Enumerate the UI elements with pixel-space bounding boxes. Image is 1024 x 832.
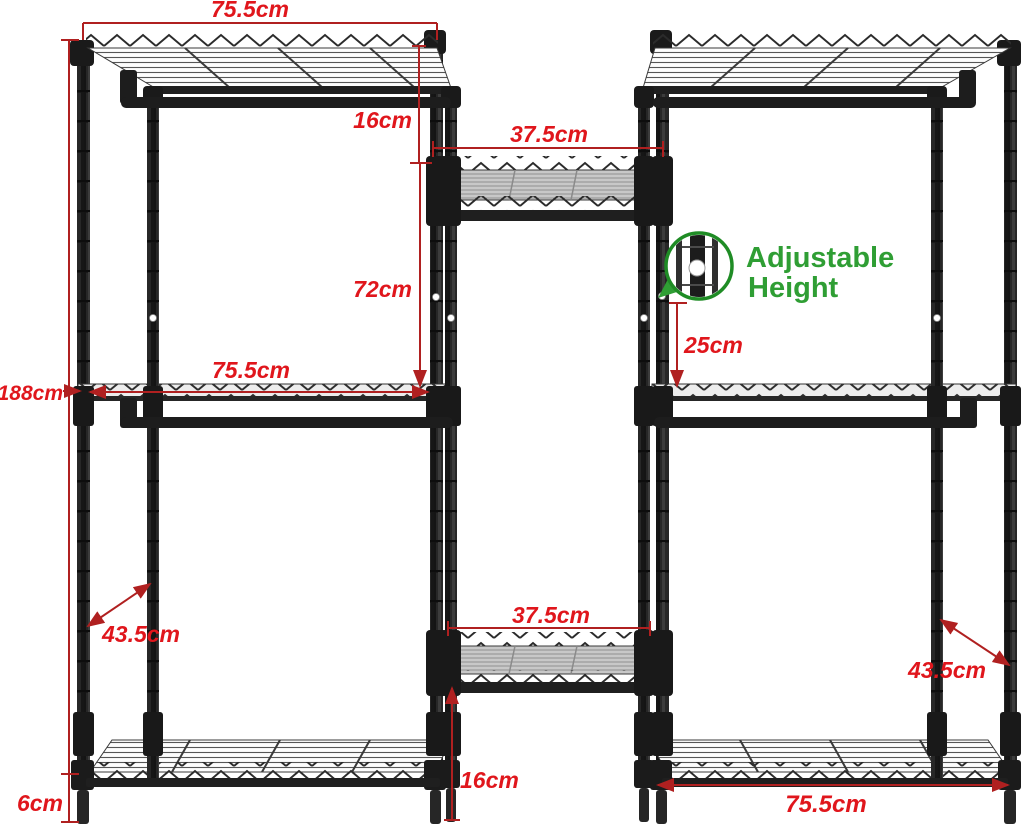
right-middle-shelf xyxy=(652,384,1016,401)
shelf-front-bar xyxy=(150,86,452,94)
dim-label-lower-gap-height: 16cm xyxy=(460,767,519,793)
dim-label-upper-gap-height: 72cm xyxy=(353,276,412,302)
dim-label-foot-height: 6cm xyxy=(17,790,63,816)
bottom-shelf-front-bar-left xyxy=(86,778,440,787)
shelf-front-bar xyxy=(438,682,668,693)
post-cap-front-center-right xyxy=(634,86,654,108)
shelf-wire-edge xyxy=(88,762,438,778)
shelf-front-bar xyxy=(640,86,944,94)
shelf-wire-edge xyxy=(664,762,1014,778)
hanging-rod-middle-right xyxy=(654,417,977,428)
shelf-wire-edge xyxy=(86,32,438,48)
dim-label-top-rod-drop: 16cm xyxy=(353,107,412,133)
right-bottom-shelf xyxy=(650,740,1014,778)
dim-label-top-shelf-width: 75.5cm xyxy=(211,0,289,22)
center-lower-shelf xyxy=(438,632,668,693)
dim-label-middle-shelf-width: 75.5cm xyxy=(212,357,290,383)
post-front-left xyxy=(147,106,159,778)
hanging-rod-middle-left xyxy=(121,417,453,428)
shelf-wire-edge xyxy=(653,32,1011,48)
dim-label-bottom-shelf-width: 75.5cm xyxy=(785,791,866,818)
hanging-rod-top-right xyxy=(653,97,976,108)
dim-label-right-depth: 43.5cm xyxy=(907,657,986,683)
dim-label-adjustable-spacing: 25cm xyxy=(683,332,743,358)
callout-height: Height xyxy=(748,272,839,304)
dim-label-total-height: 188cm xyxy=(0,382,63,405)
callout-adjustable: Adjustable xyxy=(746,242,894,274)
magnified-hole xyxy=(689,260,705,276)
product-dimension-diagram: 75.5cm 16cm 37.5cm 72cm 25cm 188cm 75.5c… xyxy=(0,0,1024,832)
left-bottom-shelf xyxy=(88,740,450,778)
center-upper-shelf xyxy=(438,156,668,221)
dim-label-center-lower-shelf-width: 37.5cm xyxy=(512,602,590,628)
shelf-front-bar xyxy=(438,210,668,221)
dim-label-center-upper-shelf-width: 37.5cm xyxy=(510,121,588,147)
dim-label-left-depth: 43.5cm xyxy=(101,621,180,647)
garment-rack-diagram: 75.5cm 16cm 37.5cm 72cm 25cm 188cm 75.5c… xyxy=(0,0,1024,832)
